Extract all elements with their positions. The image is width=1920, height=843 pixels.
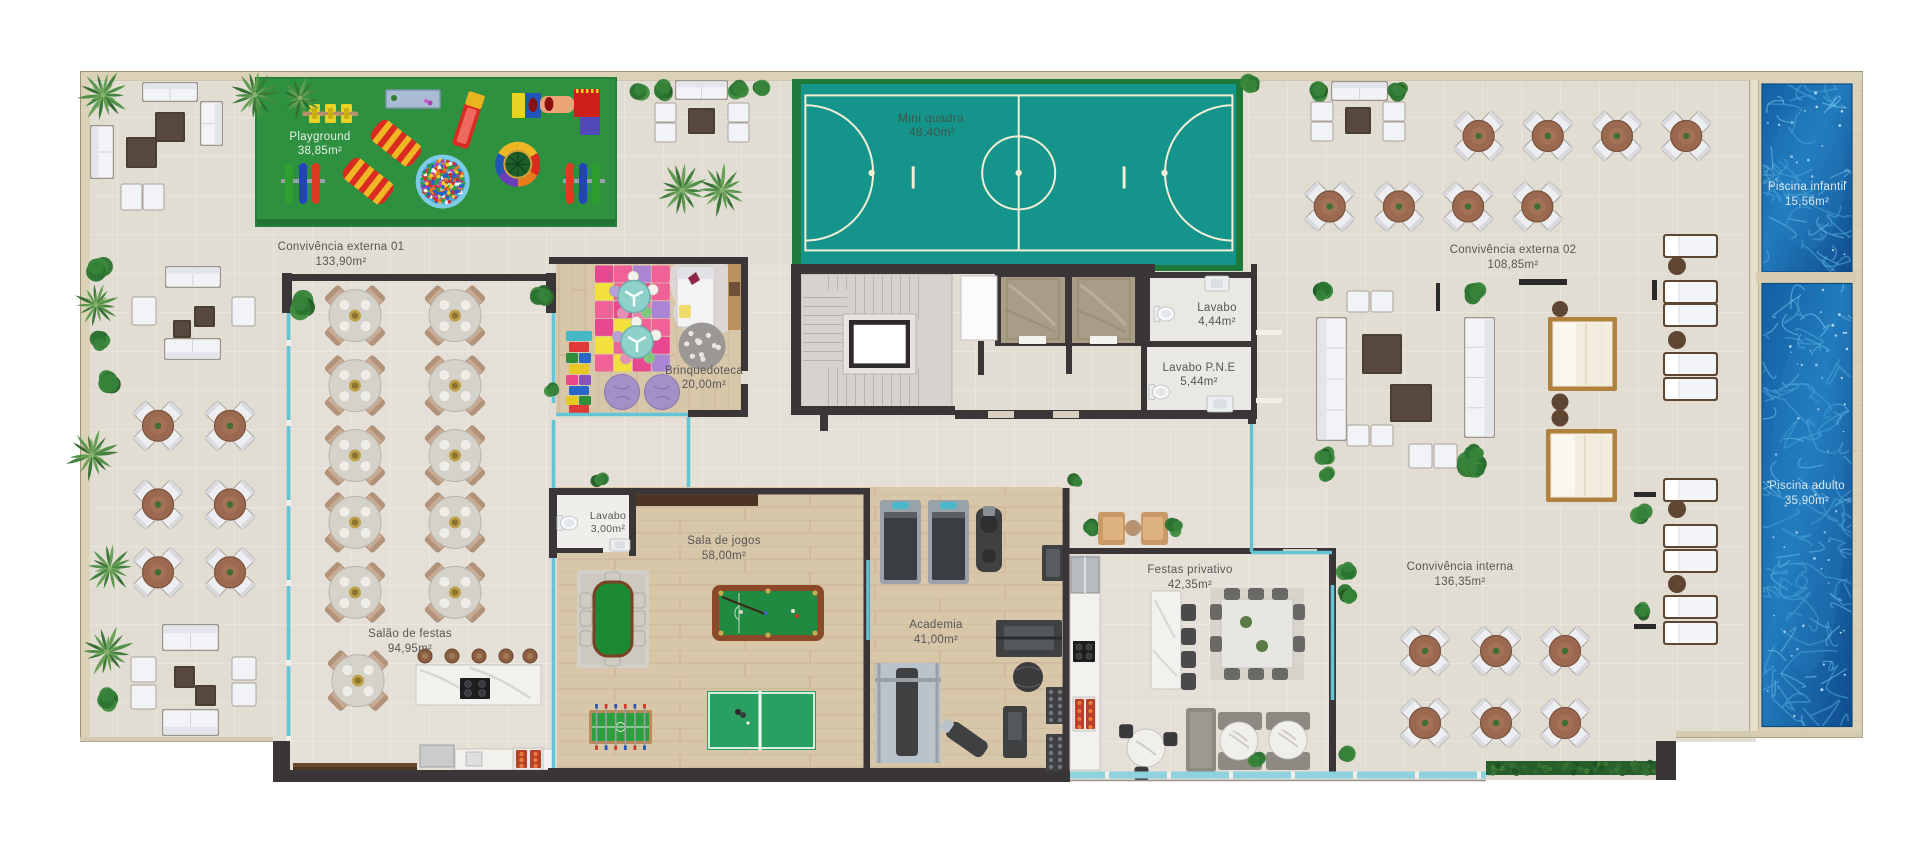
svg-text:94,95m²: 94,95m² bbox=[388, 643, 432, 655]
svg-text:35,90m²: 35,90m² bbox=[1785, 495, 1829, 507]
svg-text:15,56m²: 15,56m² bbox=[1785, 196, 1829, 208]
svg-text:Lavabo P.N.E: Lavabo P.N.E bbox=[1162, 362, 1235, 374]
svg-text:Brinquedoteca: Brinquedoteca bbox=[665, 365, 743, 377]
svg-text:Playground: Playground bbox=[289, 131, 350, 143]
svg-text:38,85m²: 38,85m² bbox=[298, 145, 342, 157]
svg-text:Piscina adulto: Piscina adulto bbox=[1769, 480, 1845, 492]
svg-text:5,44m²: 5,44m² bbox=[1180, 376, 1218, 388]
svg-text:108,85m²: 108,85m² bbox=[1488, 259, 1539, 271]
svg-text:Lavabo: Lavabo bbox=[590, 510, 626, 522]
svg-text:58,00m²: 58,00m² bbox=[702, 550, 746, 562]
svg-text:Lavabo: Lavabo bbox=[1197, 302, 1237, 314]
svg-text:133,90m²: 133,90m² bbox=[316, 256, 367, 268]
svg-text:Convivência externa 02: Convivência externa 02 bbox=[1450, 244, 1577, 256]
svg-text:4,44m²: 4,44m² bbox=[1198, 316, 1236, 328]
svg-text:20,00m²: 20,00m² bbox=[682, 379, 726, 391]
svg-text:48,40m²: 48,40m² bbox=[909, 125, 955, 139]
svg-text:Festas privativo: Festas privativo bbox=[1147, 564, 1232, 576]
svg-text:Mini quadra: Mini quadra bbox=[898, 111, 964, 125]
svg-text:Convivência externa 01: Convivência externa 01 bbox=[278, 241, 405, 253]
svg-text:Convivência interna: Convivência interna bbox=[1407, 561, 1514, 573]
svg-text:3,00m²: 3,00m² bbox=[591, 523, 626, 535]
svg-text:136,35m²: 136,35m² bbox=[1435, 576, 1486, 588]
svg-text:Sala de jogos: Sala de jogos bbox=[687, 535, 761, 547]
svg-text:Piscina infantil: Piscina infantil bbox=[1768, 181, 1846, 193]
svg-text:Salão de festas: Salão de festas bbox=[368, 628, 452, 640]
svg-text:42,35m²: 42,35m² bbox=[1168, 579, 1212, 591]
svg-text:Academia: Academia bbox=[909, 619, 963, 631]
svg-text:41,00m²: 41,00m² bbox=[914, 634, 958, 646]
